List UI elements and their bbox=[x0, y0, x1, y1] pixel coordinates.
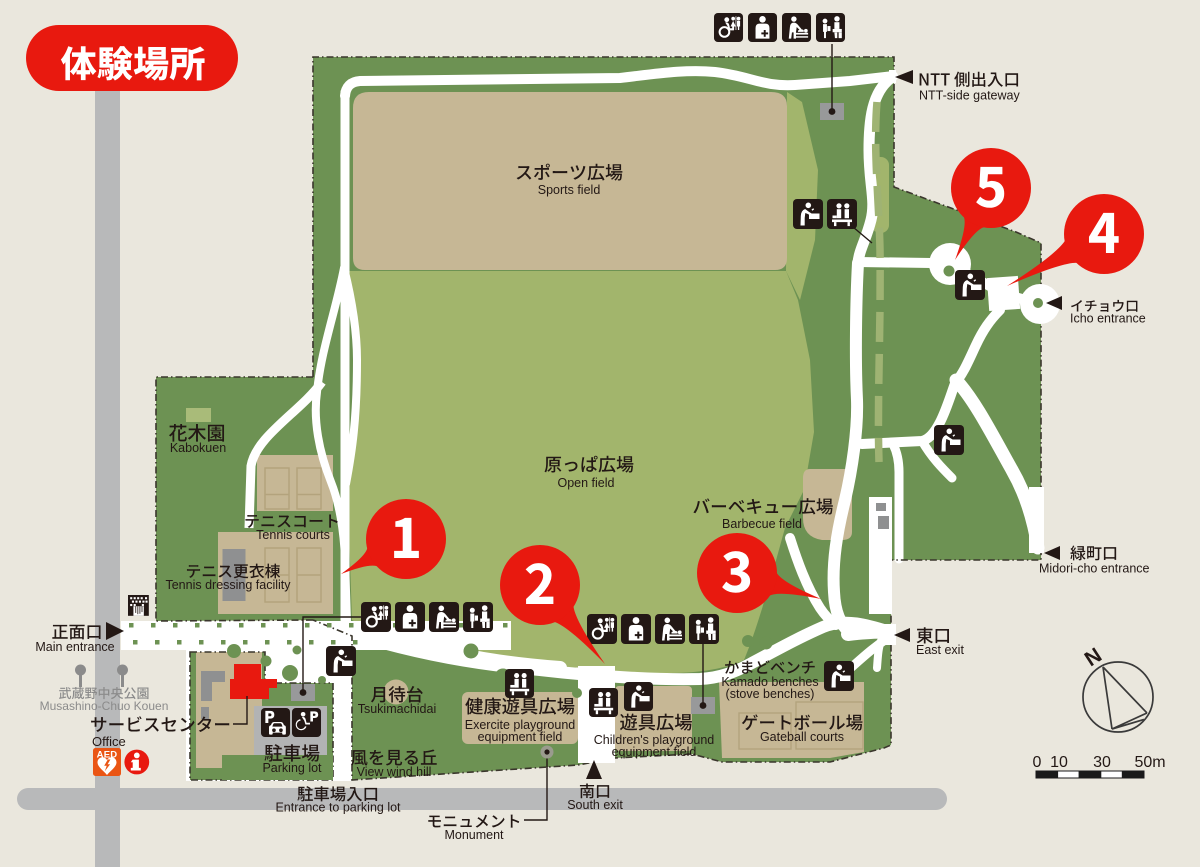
svg-text:South exit: South exit bbox=[567, 798, 623, 812]
svg-text:Sports field: Sports field bbox=[538, 183, 601, 197]
svg-text:Monument: Monument bbox=[444, 828, 504, 842]
svg-text:Parking lot: Parking lot bbox=[262, 761, 322, 775]
svg-text:Midori-cho entrance: Midori-cho entrance bbox=[1039, 562, 1150, 576]
svg-text:Tsukimachidai: Tsukimachidai bbox=[358, 702, 437, 716]
svg-text:Entrance to parking lot: Entrance to parking lot bbox=[275, 801, 401, 815]
svg-text:East exit: East exit bbox=[916, 643, 964, 657]
svg-text:equipment field: equipment field bbox=[478, 730, 563, 744]
svg-text:Main entrance: Main entrance bbox=[35, 640, 114, 654]
svg-text:Tennis dressing facility: Tennis dressing facility bbox=[165, 578, 291, 592]
svg-text:Tennis courts: Tennis courts bbox=[256, 528, 330, 542]
svg-text:10: 10 bbox=[1050, 754, 1068, 771]
svg-text:(stove benches): (stove benches) bbox=[726, 687, 815, 701]
svg-text:0: 0 bbox=[1033, 754, 1042, 771]
svg-text:30: 30 bbox=[1093, 754, 1111, 771]
svg-text:equipment field: equipment field bbox=[612, 745, 697, 759]
svg-text:NTT-side gateway: NTT-side gateway bbox=[919, 89, 1020, 103]
svg-text:Barbecue field: Barbecue field bbox=[722, 517, 802, 531]
svg-text:Open field: Open field bbox=[558, 476, 615, 490]
svg-text:View wind hill: View wind hill bbox=[357, 765, 432, 779]
svg-text:50m: 50m bbox=[1134, 754, 1165, 771]
svg-text:Icho entrance: Icho entrance bbox=[1070, 312, 1146, 326]
svg-text:Kabokuen: Kabokuen bbox=[170, 441, 226, 455]
svg-text:Gateball courts: Gateball courts bbox=[760, 730, 844, 744]
svg-text:Office: Office bbox=[92, 734, 126, 749]
svg-text:Musashino-Chuo Kouen: Musashino-Chuo Kouen bbox=[40, 699, 169, 713]
